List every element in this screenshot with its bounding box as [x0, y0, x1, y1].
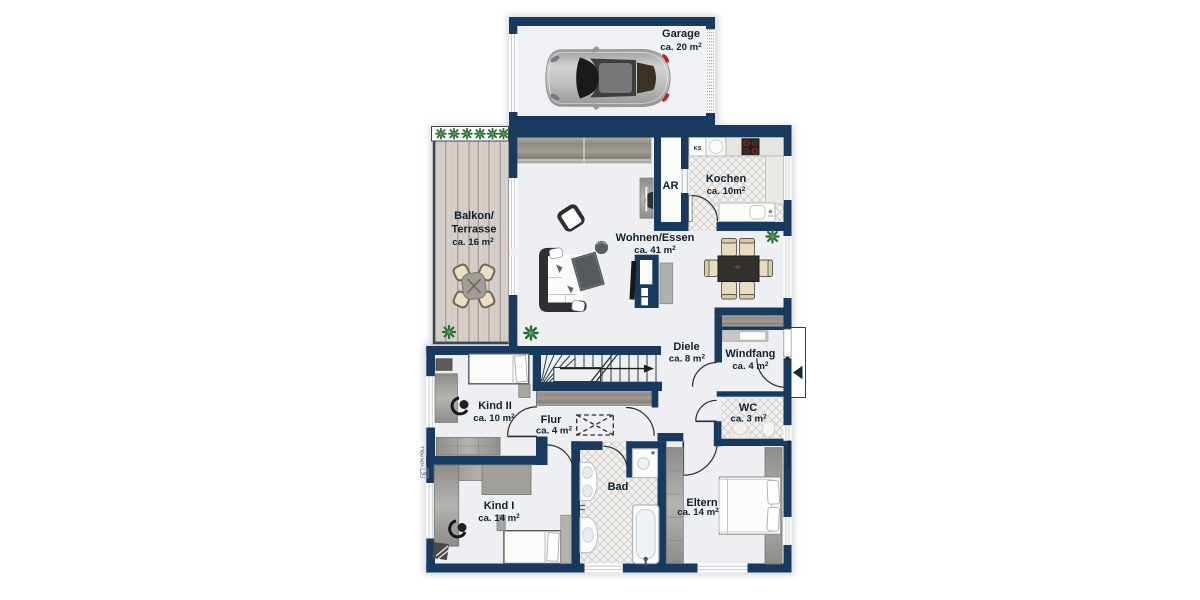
svg-text:ca. 14 m2: ca. 14 m2 — [677, 507, 719, 518]
svg-text:Kochen: Kochen — [706, 173, 747, 185]
svg-text:ca. 14 m2: ca. 14 m2 — [478, 513, 520, 524]
svg-text:ca. 10m2: ca. 10m2 — [707, 186, 746, 197]
svg-text:Balkon/: Balkon/ — [454, 210, 494, 222]
svg-text:Windfang: Windfang — [725, 348, 775, 360]
svg-text:VP: VP — [421, 472, 427, 477]
svg-text:IMMOBILIEN: IMMOBILIEN — [426, 449, 430, 467]
svg-text:ca. 41 m2: ca. 41 m2 — [634, 245, 676, 256]
svg-text:Diele: Diele — [673, 341, 699, 353]
svg-text:AR: AR — [663, 180, 679, 192]
svg-text:KS: KS — [694, 146, 702, 152]
svg-text:ca. 4 m2: ca. 4 m2 — [536, 426, 573, 437]
svg-text:Kind II: Kind II — [478, 400, 512, 412]
svg-text:Wohnen/Essen: Wohnen/Essen — [616, 232, 695, 244]
svg-text:Garage: Garage — [662, 28, 700, 40]
svg-text:ca. 16 m2: ca. 16 m2 — [452, 237, 494, 248]
svg-text:ca. 10 m2: ca. 10 m2 — [473, 413, 515, 424]
svg-text:Bad: Bad — [608, 481, 629, 493]
svg-text:Flur: Flur — [541, 414, 562, 426]
svg-text:ca. 8 m2: ca. 8 m2 — [669, 354, 706, 365]
svg-text:Terrasse: Terrasse — [451, 224, 496, 236]
svg-text:immogrundriss: immogrundriss — [787, 440, 792, 467]
svg-text:WC: WC — [739, 402, 757, 414]
svg-text:ca. 3 m2: ca. 3 m2 — [731, 414, 768, 425]
svg-text:ca. 20 m2: ca. 20 m2 — [660, 42, 702, 53]
svg-text:VON POLL: VON POLL — [420, 445, 425, 467]
svg-text:ca. 4 m2: ca. 4 m2 — [732, 361, 769, 372]
svg-text:Kind I: Kind I — [484, 500, 515, 512]
